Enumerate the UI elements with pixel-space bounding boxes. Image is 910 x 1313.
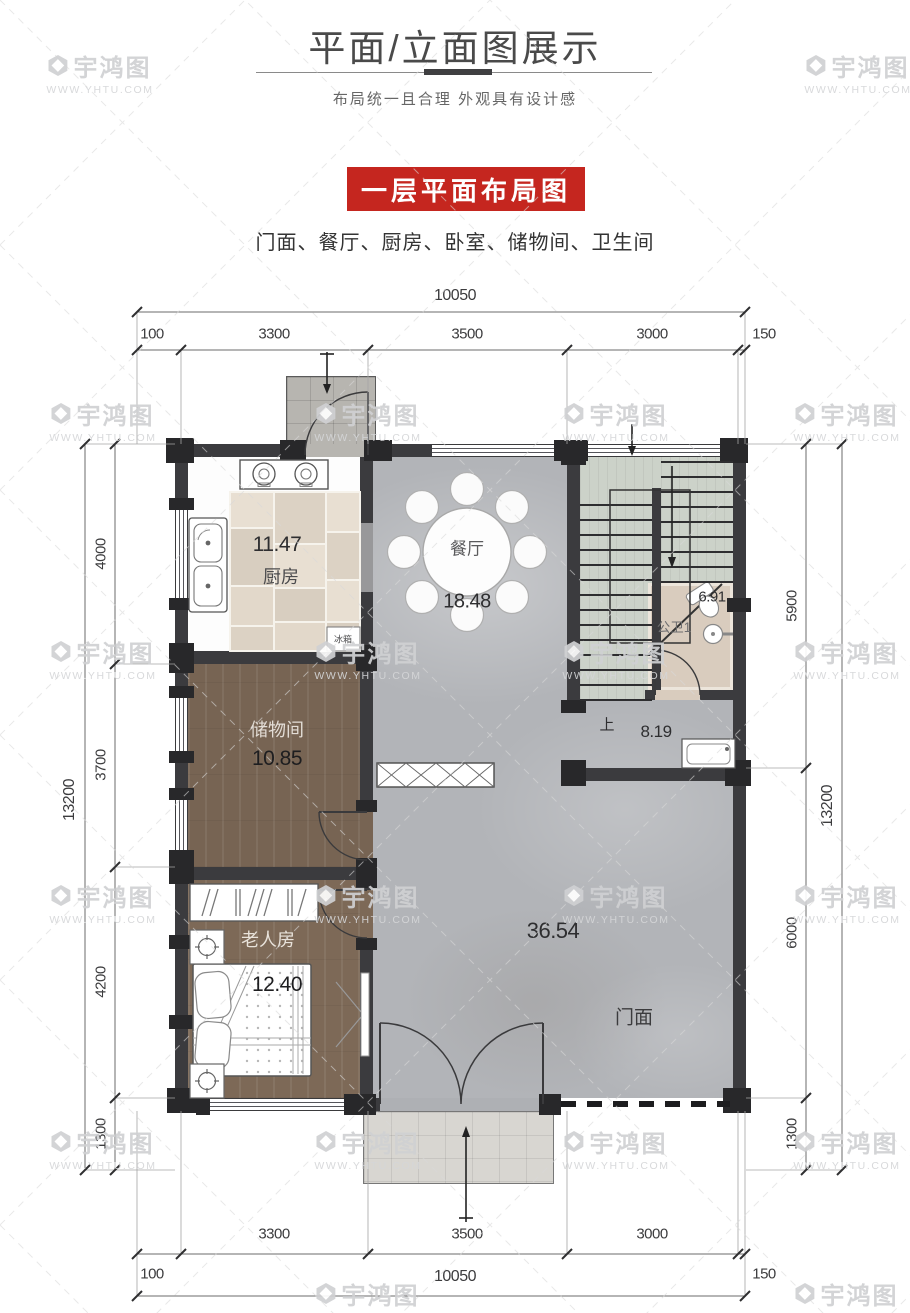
entrance-double-door xyxy=(380,1023,543,1104)
stair-up-label: 上 xyxy=(599,714,614,735)
bedroom-area-label: 12.40 xyxy=(252,973,302,997)
dim-right-seg-2: 6000 xyxy=(784,917,801,948)
dim-top-seg-3: 3000 xyxy=(636,326,667,343)
plan-linework xyxy=(0,0,910,1313)
storage-door-arc xyxy=(319,812,367,860)
dim-bottom-seg-2: 3500 xyxy=(451,1226,482,1243)
bedroom-door-arc xyxy=(319,890,367,938)
shop-area-label: 36.54 xyxy=(527,918,580,944)
hall-sink-icon xyxy=(682,739,735,768)
dim-top-offset-right: 150 xyxy=(752,326,776,343)
dim-top-total: 10050 xyxy=(434,287,476,305)
dimension-lines xyxy=(85,312,842,1296)
dim-left-seg-4: 1300 xyxy=(93,1118,110,1149)
dim-left-seg-3: 4200 xyxy=(93,966,110,997)
wardrobe-icon xyxy=(190,884,318,921)
dimension-extensions xyxy=(85,312,842,1296)
kitchen-name-label: 厨房 xyxy=(263,563,299,589)
storage-area-label: 10.85 xyxy=(252,747,302,771)
wall-panel-icon xyxy=(336,973,369,1056)
storage-name-label: 储物间 xyxy=(250,716,304,742)
shop-name-label: 门面 xyxy=(615,1003,653,1030)
floor-plan-page: 平面/立面图展示 布局统一且合理 外观具有设计感 一层平面布局图 门面、餐厅、厨… xyxy=(0,0,910,1313)
fridge-label: 冰箱 xyxy=(334,633,352,646)
dim-bottom-seg-3: 3000 xyxy=(636,1226,667,1243)
kitchen-sink-icon xyxy=(189,518,227,612)
stair-treads xyxy=(580,462,733,700)
dim-bottom-total: 10050 xyxy=(434,1268,476,1286)
stove-icon xyxy=(240,460,328,489)
entry-arrow-top xyxy=(320,352,334,394)
kitchen-door-arc xyxy=(305,392,368,455)
dimension-ticks xyxy=(80,307,847,1301)
dim-right-seg-3: 1300 xyxy=(784,1118,801,1149)
bathroom-area-label: 6.91 xyxy=(698,589,725,606)
entry-arrow-bottom xyxy=(459,1126,473,1222)
kitchen-area-label: 11.47 xyxy=(253,533,302,557)
bathroom-door-arc xyxy=(655,650,700,695)
dim-top-seg-2: 3500 xyxy=(451,326,482,343)
dim-right-seg-1: 5900 xyxy=(784,590,801,621)
hall-area-label: 8.19 xyxy=(640,722,671,742)
bedroom-name-label: 老人房 xyxy=(241,926,295,952)
bathroom-name-label: 公卫1 xyxy=(657,616,692,636)
dim-right-total: 13200 xyxy=(819,785,837,827)
dining-area-label: 18.48 xyxy=(443,591,491,614)
dim-top-seg-1: 3300 xyxy=(258,326,289,343)
dim-bottom-offset-left: 100 xyxy=(140,1266,164,1283)
cabinet-x-icon xyxy=(377,763,494,787)
dim-left-seg-2: 3700 xyxy=(93,749,110,780)
stair-direction-arrow xyxy=(628,424,676,568)
dim-bottom-offset-right: 150 xyxy=(752,1266,776,1283)
dim-bottom-seg-1: 3300 xyxy=(258,1226,289,1243)
dim-left-total: 13200 xyxy=(61,779,79,821)
dining-name-label: 餐厅 xyxy=(450,535,484,560)
dim-top-offset-left: 100 xyxy=(140,326,164,343)
dim-left-seg-1: 4000 xyxy=(93,538,110,569)
